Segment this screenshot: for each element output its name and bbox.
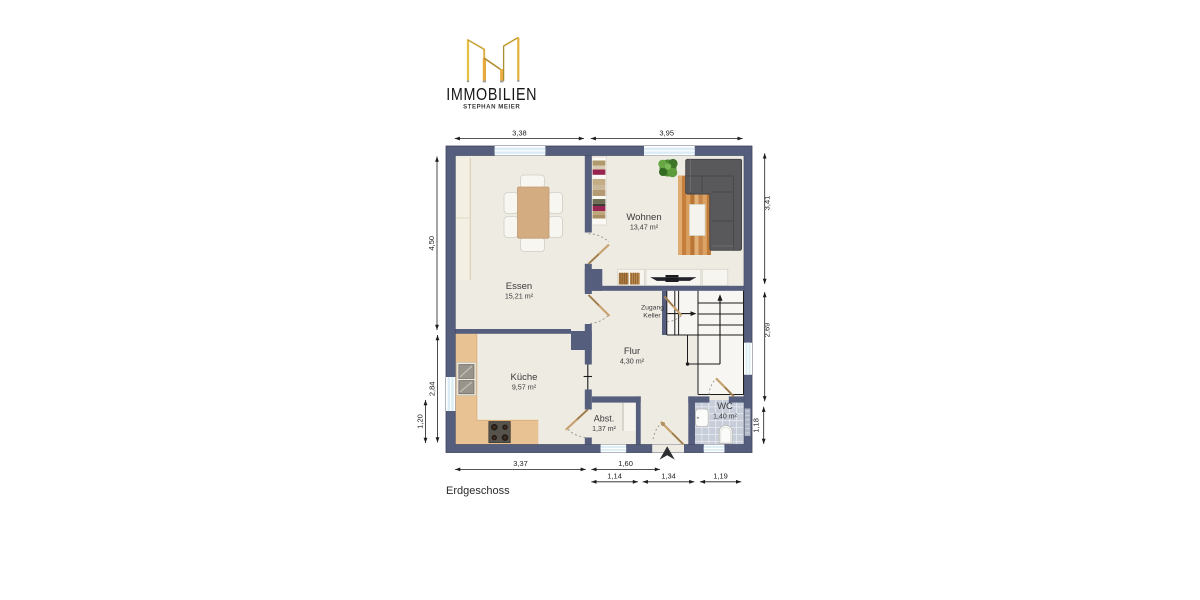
svg-text:3,41: 3,41 bbox=[763, 196, 772, 211]
svg-text:Essen: Essen bbox=[506, 281, 532, 292]
svg-text:Abst.: Abst. bbox=[594, 414, 615, 424]
svg-text:2,69: 2,69 bbox=[763, 323, 772, 338]
svg-text:1,34: 1,34 bbox=[661, 472, 676, 481]
svg-text:Erdgeschoss: Erdgeschoss bbox=[446, 485, 510, 497]
svg-text:13,47 m²: 13,47 m² bbox=[630, 223, 659, 232]
svg-text:WC: WC bbox=[717, 401, 733, 412]
svg-text:3,38: 3,38 bbox=[512, 128, 527, 137]
svg-text:3,37: 3,37 bbox=[513, 459, 528, 468]
svg-text:STEPHAN MEIER: STEPHAN MEIER bbox=[463, 103, 520, 110]
svg-text:Keller: Keller bbox=[643, 313, 661, 320]
svg-text:Zugang: Zugang bbox=[641, 305, 664, 312]
svg-text:4,30 m²: 4,30 m² bbox=[620, 357, 645, 366]
svg-text:1,40 m²: 1,40 m² bbox=[713, 414, 737, 421]
svg-text:1,37 m²: 1,37 m² bbox=[592, 426, 616, 433]
svg-text:15,21 m²: 15,21 m² bbox=[505, 292, 534, 301]
svg-text:9,57 m²: 9,57 m² bbox=[512, 383, 537, 392]
svg-text:2,84: 2,84 bbox=[427, 381, 436, 396]
svg-text:1,19: 1,19 bbox=[713, 472, 728, 481]
svg-text:Küche: Küche bbox=[511, 372, 538, 383]
svg-text:Wohnen: Wohnen bbox=[626, 212, 661, 223]
svg-text:Flur: Flur bbox=[624, 346, 640, 357]
svg-text:4,50: 4,50 bbox=[427, 236, 436, 251]
svg-text:1,14: 1,14 bbox=[607, 472, 622, 481]
svg-text:IMMOBILIEN: IMMOBILIEN bbox=[446, 85, 537, 105]
svg-text:1,60: 1,60 bbox=[618, 459, 633, 468]
svg-text:1,20: 1,20 bbox=[415, 414, 424, 429]
svg-text:3,95: 3,95 bbox=[659, 128, 674, 137]
svg-text:1,18: 1,18 bbox=[752, 418, 761, 433]
